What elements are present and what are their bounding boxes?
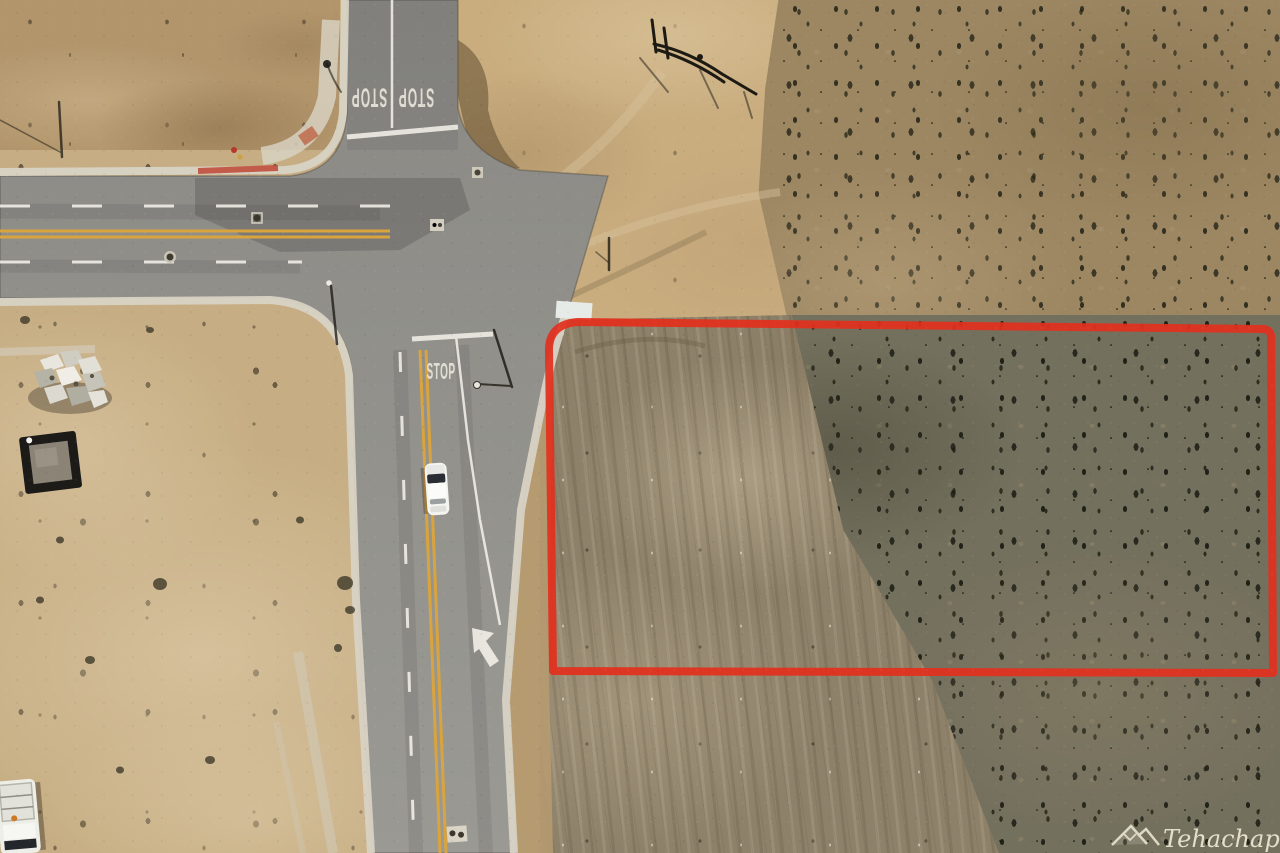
sidewalk-strip-south <box>0 349 95 352</box>
manhole-cover <box>430 219 444 231</box>
property-boundary <box>549 322 1273 673</box>
watermark-script: Tehachapi <box>1163 825 1280 853</box>
stop-marking-text: STOP <box>351 82 387 112</box>
manhole-cover <box>164 251 176 263</box>
concrete-pad-end <box>555 301 592 320</box>
ranch-gate <box>640 20 756 118</box>
utility-pole <box>0 102 62 157</box>
stop-marking-text: STOP <box>426 358 455 384</box>
rock-pile <box>28 350 112 414</box>
stop-marking-text: STOP <box>398 82 434 112</box>
survey-markers <box>231 147 243 160</box>
photo-overlay: STOP STOP STOP <box>0 0 1280 853</box>
manhole-cover <box>446 825 467 842</box>
white-car <box>420 462 450 516</box>
lined-basin <box>19 431 83 495</box>
manhole-cover <box>472 167 483 178</box>
mountain-logo-icon <box>1112 826 1159 845</box>
watermark-text: Tehachapi MLS <box>1163 825 1280 853</box>
sidewalk-strips-bottom <box>276 652 333 853</box>
white-truck <box>0 778 46 853</box>
sidewalk-corner <box>262 20 331 156</box>
mls-watermark: Tehachapi MLS <box>1112 825 1280 853</box>
red-painted-curb <box>198 168 278 171</box>
aerial-photo: STOP STOP STOP <box>0 0 1280 853</box>
